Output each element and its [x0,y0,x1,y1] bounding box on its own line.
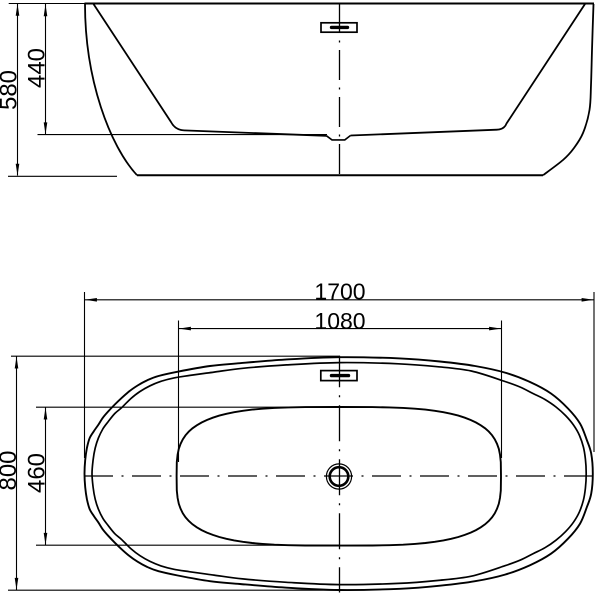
svg-text:440: 440 [23,48,50,88]
svg-text:1700: 1700 [314,279,365,305]
svg-text:580: 580 [0,70,22,110]
svg-text:1080: 1080 [314,308,365,334]
svg-text:460: 460 [23,453,50,493]
svg-text:800: 800 [0,450,22,490]
